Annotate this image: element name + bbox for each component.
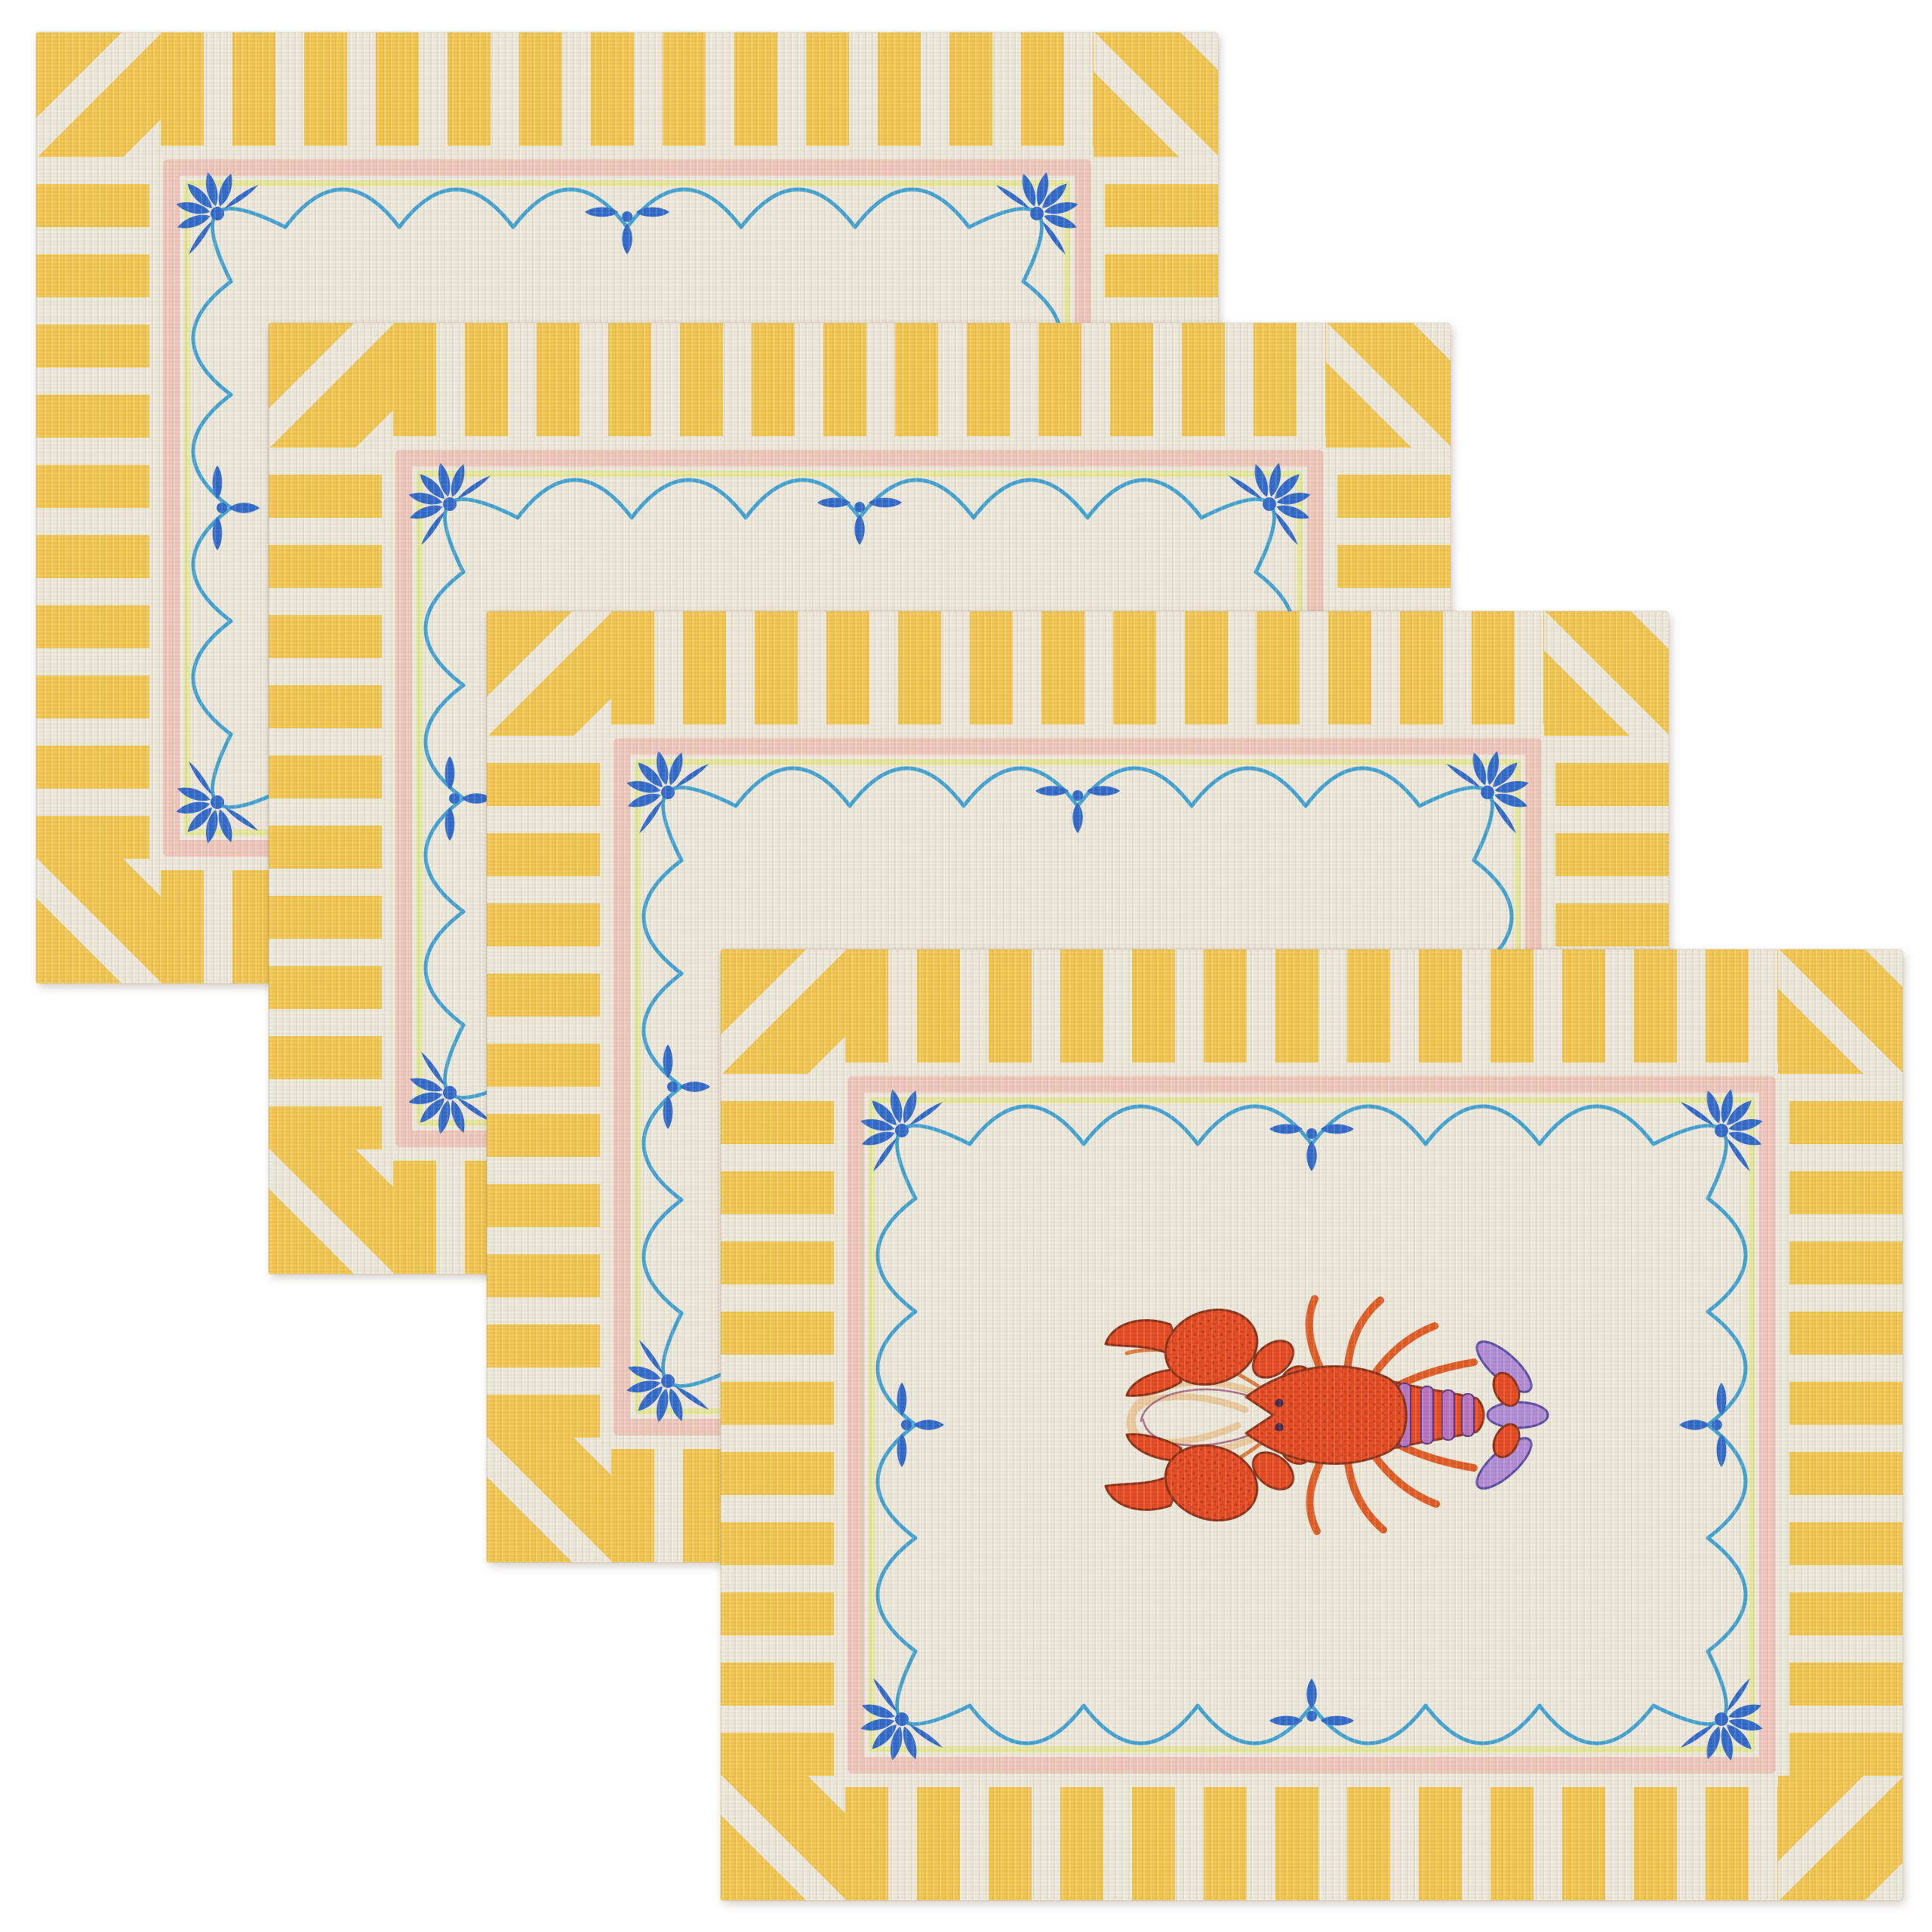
edge-drop-icon [663,1044,710,1129]
corner-flower-icon [152,149,260,257]
edge-drop-icon [1269,1124,1354,1171]
corner-flower-icon [385,439,493,547]
edge-drop-icon [213,466,260,550]
edge-drop-icon [1035,786,1120,833]
edge-drop-icon [1269,1678,1354,1725]
placemat-4-front [721,949,1903,1900]
corner-flower-icon [152,759,260,867]
corner-flower-icon [837,1066,945,1174]
corner-flower-icon [837,1676,945,1784]
edge-drop-icon [585,208,669,254]
lobster-illustration [1098,1278,1551,1549]
edge-drop-icon [1679,1383,1726,1467]
edge-drop-icon [817,498,902,545]
corner-flower-icon [1678,1676,1786,1784]
corner-flower-icon [1678,1066,1786,1174]
corner-flower-icon [994,149,1102,257]
lobster-carapace [1246,1367,1406,1464]
corner-flower-icon [603,1338,711,1446]
corner-flower-icon [1226,439,1334,547]
corner-flower-icon [385,1050,493,1158]
placemat-stack [0,0,1932,1932]
edge-drop-icon [897,1383,944,1467]
corner-flower-icon [603,728,711,835]
corner-flower-icon [1444,728,1552,835]
lobster-icon [1098,1278,1551,1549]
edge-drop-icon [445,756,492,841]
